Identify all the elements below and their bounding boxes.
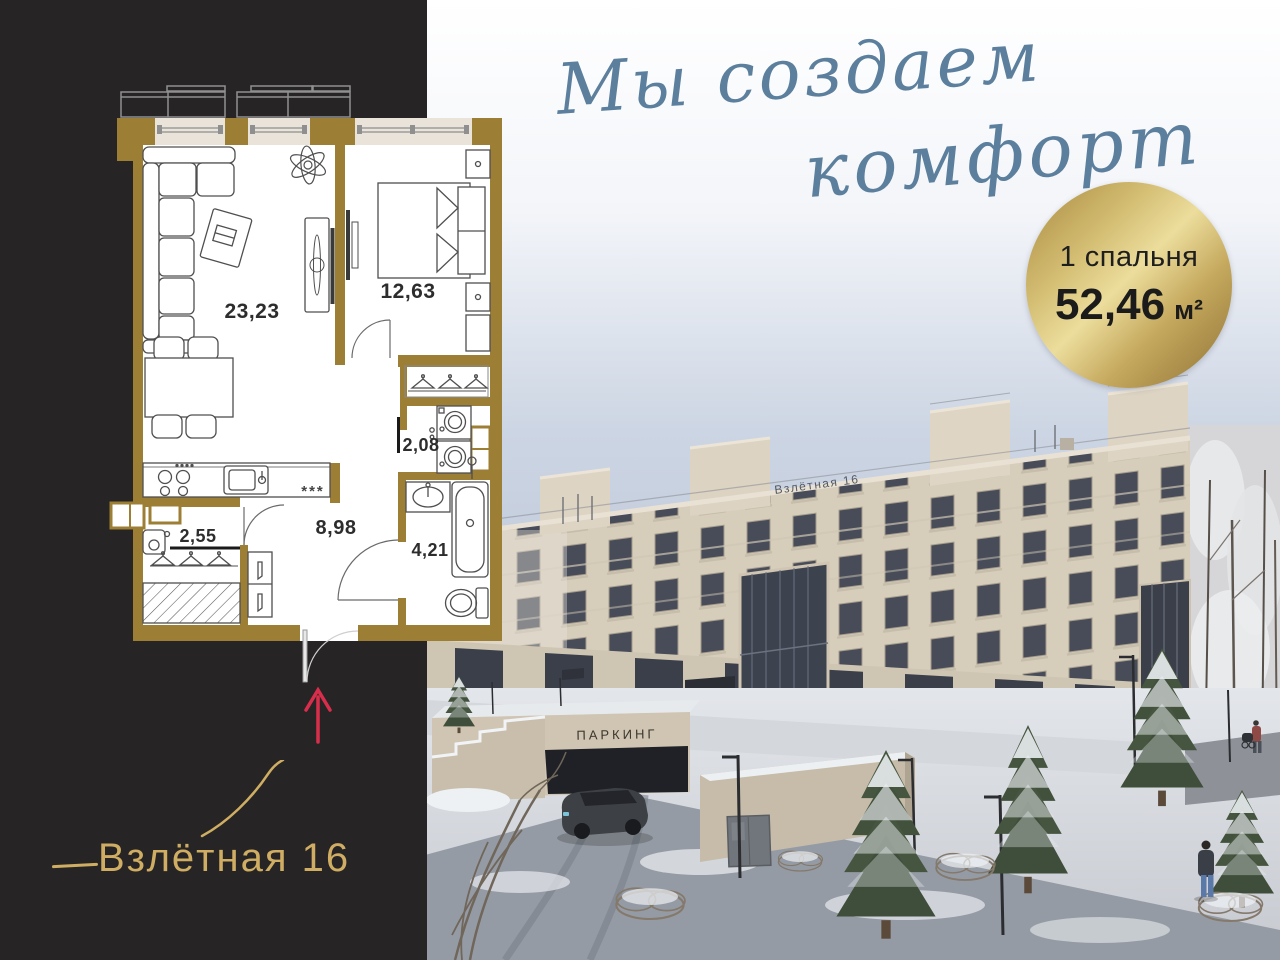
room-label-living: 23,23 <box>224 300 279 323</box>
badge-bedrooms-label: 1 спальня <box>1060 241 1199 274</box>
bathroom-sink <box>406 482 450 512</box>
car <box>557 788 653 846</box>
storefront-sign-2 <box>562 668 584 680</box>
badge-area-unit: м² <box>1174 295 1203 326</box>
entry-arrow <box>306 690 330 742</box>
logo-dash <box>52 863 98 868</box>
garage-opening <box>545 746 688 794</box>
parking-sign: ПАРКИНГ <box>576 726 657 742</box>
room-label-closet: 2,55 <box>179 526 216 546</box>
bed <box>378 183 485 278</box>
snow-pile <box>426 788 510 812</box>
area-badge: 1 спальня 52,46 м² <box>1026 182 1232 388</box>
boiler-icon <box>143 530 170 554</box>
brand-logo: Взлётная 16 <box>0 752 420 912</box>
logo-name: Взлётная 16 <box>98 836 350 881</box>
room-label-hallway: 8,98 <box>316 517 357 539</box>
room-label-bedroom: 12,63 <box>380 280 435 303</box>
poster: Взлётная 16 <box>0 0 1280 960</box>
utility-box <box>727 815 771 866</box>
sink-icon <box>224 466 268 494</box>
logo-swoosh-icon <box>198 760 293 840</box>
room-label-bathroom: 4,21 <box>411 540 448 560</box>
fridge-mark: *** <box>301 483 325 500</box>
balconies <box>121 86 350 117</box>
badge-area: 52,46 м² <box>1055 280 1203 330</box>
badge-area-value: 52,46 <box>1055 280 1165 330</box>
room-label-laundry: 2,08 <box>402 435 439 455</box>
kitchen-counter: *** <box>143 463 330 500</box>
hall-wardrobe <box>248 552 272 617</box>
storage-hatch <box>143 583 240 623</box>
floor-plan: *** <box>105 80 510 750</box>
